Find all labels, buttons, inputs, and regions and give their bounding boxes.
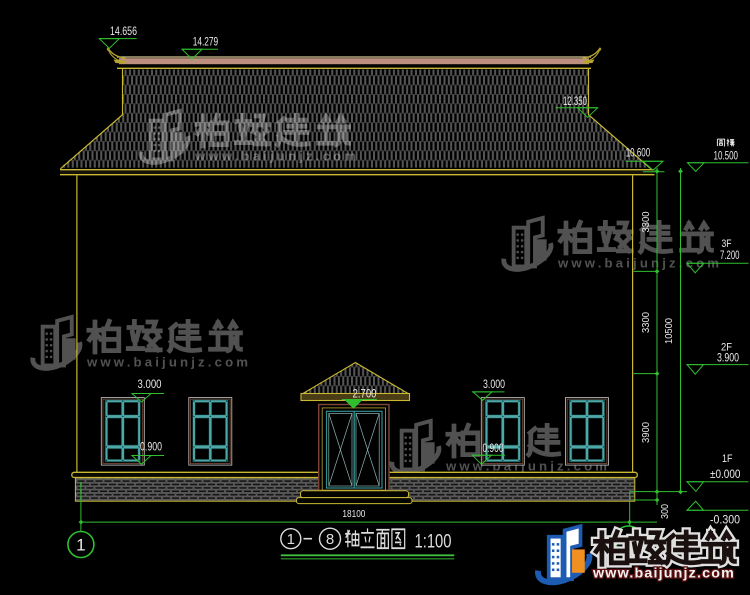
svg-text:14.656: 14.656 bbox=[110, 26, 137, 38]
svg-text:7.200: 7.200 bbox=[720, 248, 740, 262]
svg-text:3.000: 3.000 bbox=[483, 379, 505, 391]
svg-text:0.900: 0.900 bbox=[483, 443, 504, 455]
svg-text:2.700: 2.700 bbox=[353, 388, 377, 400]
svg-text:www.baijunjz.com: www.baijunjz.com bbox=[592, 566, 735, 581]
svg-text:±0.000: ±0.000 bbox=[710, 467, 741, 481]
svg-text:8: 8 bbox=[326, 531, 334, 548]
svg-text:1: 1 bbox=[76, 536, 85, 555]
svg-text:10.500: 10.500 bbox=[714, 148, 739, 162]
svg-text:1: 1 bbox=[287, 531, 295, 548]
svg-text:3300: 3300 bbox=[641, 312, 652, 333]
svg-text:3900: 3900 bbox=[641, 422, 652, 443]
svg-text:10.600: 10.600 bbox=[626, 148, 651, 160]
svg-text:1F: 1F bbox=[722, 453, 733, 465]
svg-text:14.279: 14.279 bbox=[193, 37, 219, 49]
svg-text:12.350: 12.350 bbox=[563, 96, 587, 108]
svg-text:3300: 3300 bbox=[641, 211, 652, 232]
svg-text:3.900: 3.900 bbox=[717, 351, 739, 365]
svg-text:18100: 18100 bbox=[342, 508, 365, 520]
svg-text:0.900: 0.900 bbox=[140, 442, 162, 454]
svg-text:1:100: 1:100 bbox=[415, 532, 452, 553]
svg-text:300: 300 bbox=[660, 504, 671, 519]
svg-text:-0.300: -0.300 bbox=[710, 512, 740, 526]
svg-text:10500: 10500 bbox=[664, 318, 675, 344]
svg-text:3.000: 3.000 bbox=[138, 379, 162, 391]
